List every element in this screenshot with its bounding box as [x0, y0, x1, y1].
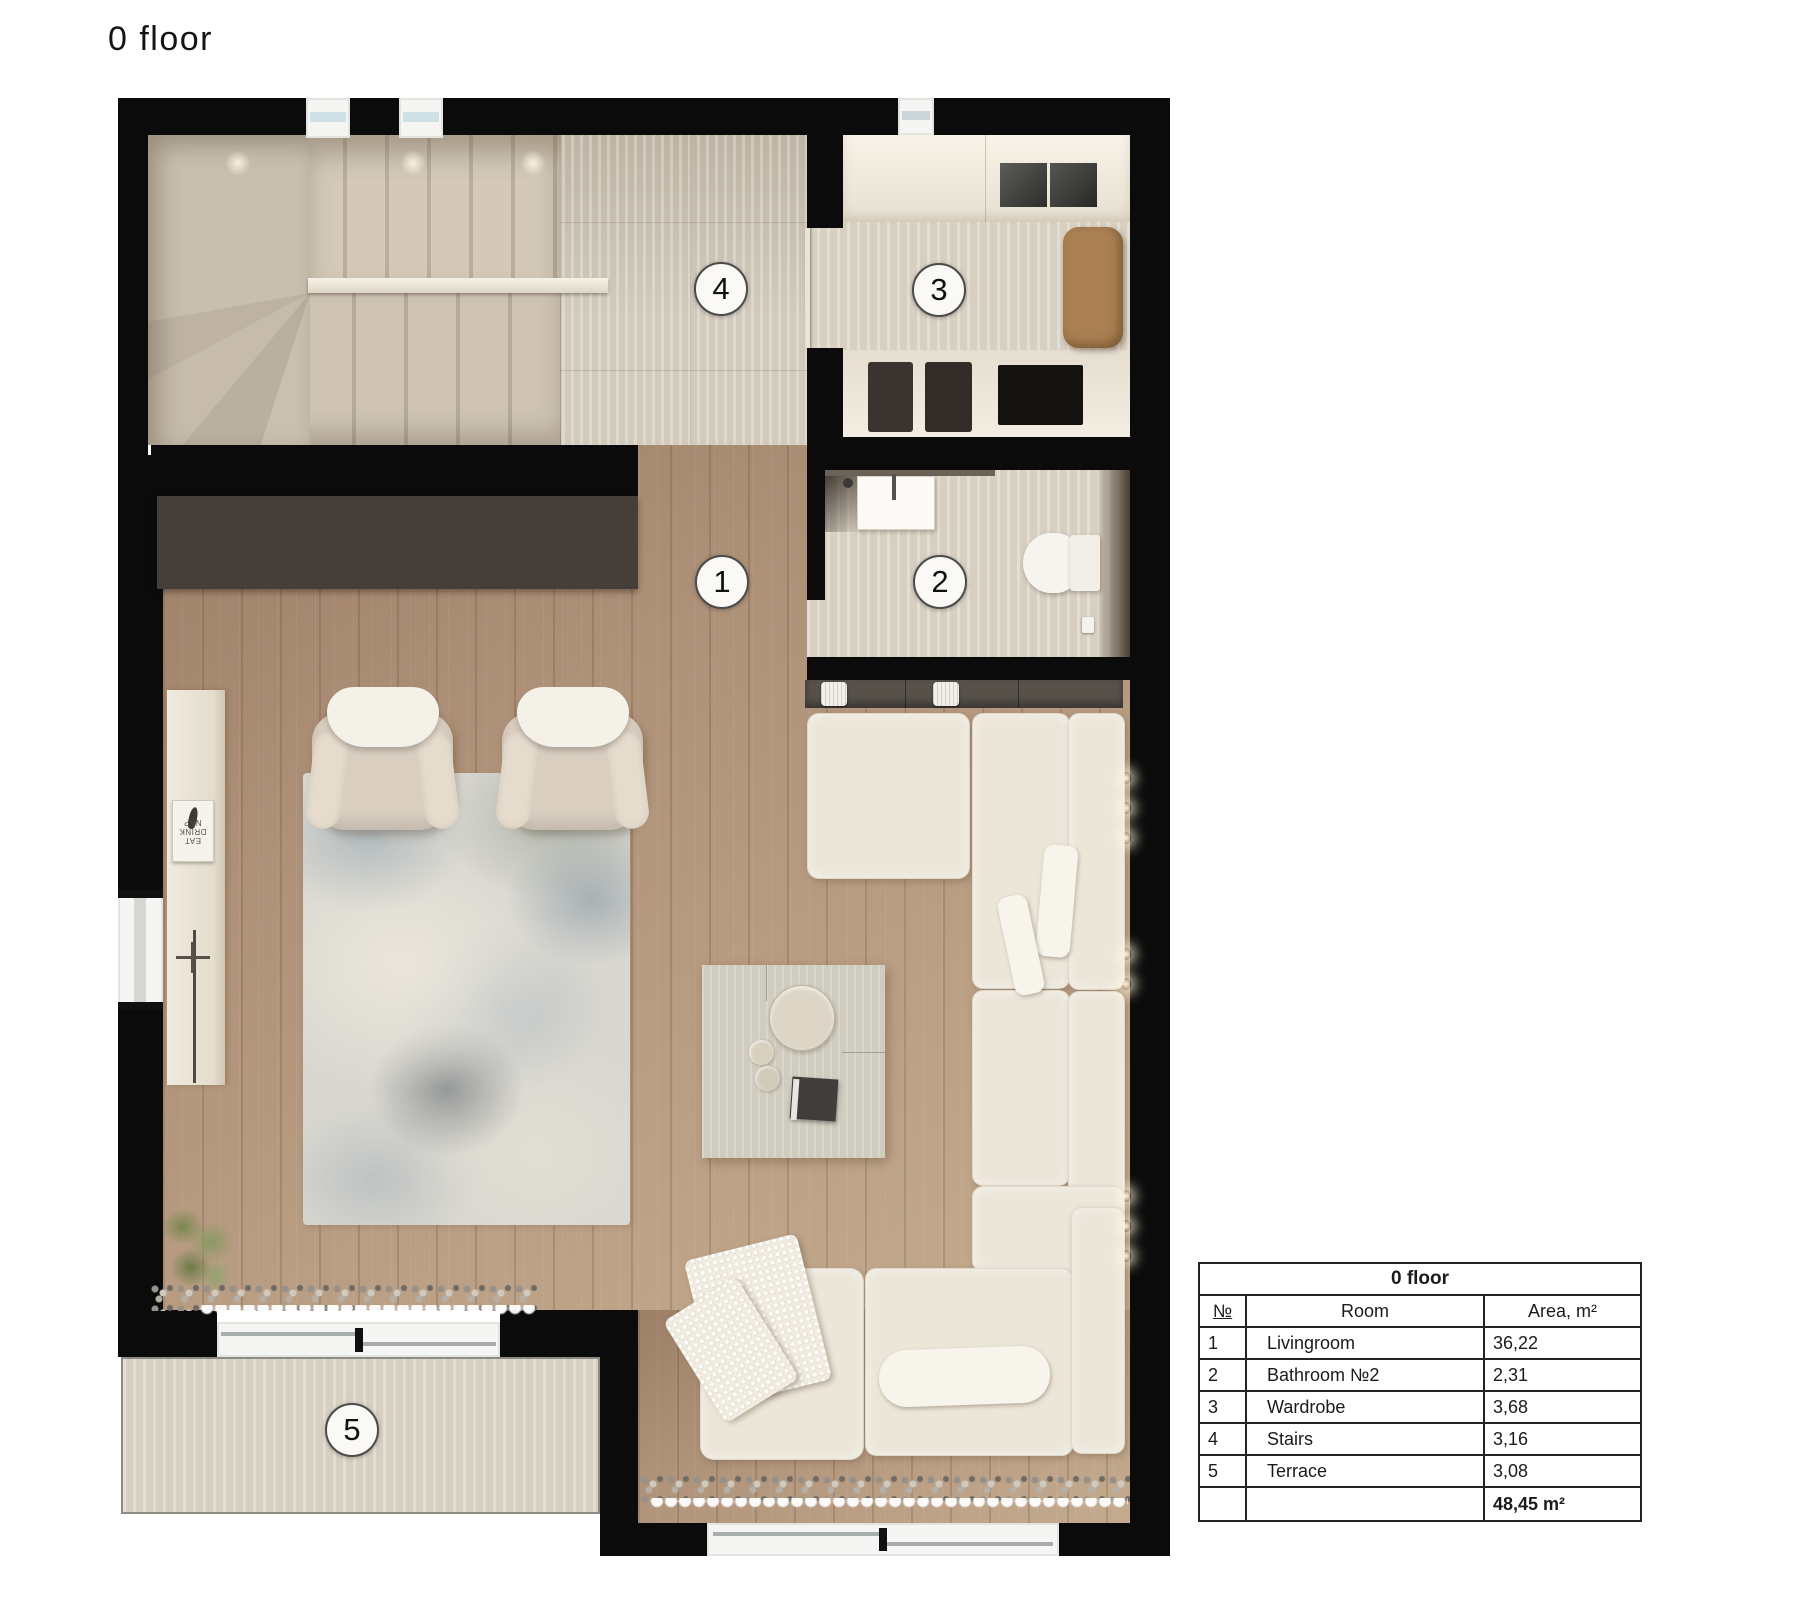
tile-joint	[560, 370, 843, 371]
window-left	[118, 890, 163, 1010]
wall-washer-light	[1121, 772, 1131, 784]
room-number: 2	[931, 564, 948, 600]
wall-stairs-wardrobe	[807, 98, 843, 228]
wall-bottom-right-of-window	[1059, 1523, 1130, 1556]
wall-unit-brown	[157, 496, 638, 589]
window-top	[399, 98, 443, 138]
cell-num: 1	[1199, 1327, 1246, 1359]
legend-col-num: №	[1199, 1295, 1246, 1327]
ceiling-spot-light	[225, 150, 251, 176]
terrace-sliding-door	[217, 1322, 500, 1357]
wall-right	[1130, 98, 1170, 1556]
room-badge-stairs: 4	[694, 262, 748, 316]
cell-room: Terrace	[1246, 1455, 1484, 1487]
sofa-seat	[972, 990, 1070, 1186]
table-seam	[842, 1052, 885, 1053]
cell-area: 36,22	[1484, 1327, 1641, 1359]
kitchen-counter	[167, 690, 225, 1085]
legend-row: 3 Wardrobe 3,68	[1199, 1391, 1641, 1423]
bottom-sliding-window	[707, 1523, 1059, 1556]
wall-left-upper	[118, 98, 148, 455]
window-stop	[118, 1002, 163, 1010]
door-handle	[879, 1528, 887, 1551]
cell-num: 5	[1199, 1455, 1246, 1487]
wardrobe-drawer	[1050, 163, 1097, 207]
wardrobe-bench	[1063, 227, 1123, 348]
legend-row: 4 Stairs 3,16	[1199, 1423, 1641, 1455]
bathroom-right-cabinet	[1096, 470, 1130, 657]
room-badge-terrace: 5	[325, 1403, 379, 1457]
wall-wardrobe-bathroom	[807, 437, 1170, 470]
room-number: 3	[930, 272, 947, 308]
legend-col-area: Area, m²	[1484, 1295, 1641, 1327]
cell-empty	[1199, 1487, 1246, 1521]
window-stop	[118, 890, 163, 898]
window-glass	[902, 111, 930, 120]
legend-header-row: № Room Area, m²	[1199, 1295, 1641, 1327]
cell-room: Bathroom №2	[1246, 1359, 1484, 1391]
door-track	[887, 1542, 1053, 1546]
legend-row: 1 Livingroom 36,22	[1199, 1327, 1641, 1359]
room-badge-livingroom: 1	[695, 555, 749, 609]
wardrobe-drawer	[1000, 163, 1047, 207]
cell-total-area: 48,45 m²	[1484, 1487, 1641, 1521]
ottoman	[807, 713, 970, 879]
console-divider	[905, 680, 906, 708]
kitchen-faucet-icon	[191, 942, 194, 973]
wall-washer-light	[1121, 802, 1131, 814]
window-glass	[403, 112, 439, 122]
wall-washer-light	[1121, 832, 1131, 844]
door-track	[713, 1532, 879, 1536]
wall-top	[118, 98, 1170, 135]
wall-washer-light	[1121, 978, 1131, 990]
legend-row: 2 Bathroom №2 2,31	[1199, 1359, 1641, 1391]
kitchen-poster: EAT DRINK NAP	[172, 800, 214, 862]
legend-title-row: 0 floor	[1199, 1263, 1641, 1295]
rolled-towel	[933, 682, 959, 706]
room-number: 4	[712, 271, 729, 307]
window-glass	[310, 112, 346, 122]
poster-line: EAT	[179, 836, 206, 845]
closet-divider	[985, 135, 986, 222]
door-track	[221, 1332, 355, 1336]
cell-num: 4	[1199, 1423, 1246, 1455]
armchair-headrest	[517, 687, 629, 747]
stairs-winder-fan	[148, 135, 310, 445]
storage-box	[925, 362, 972, 432]
wall-washer-light	[1121, 1250, 1131, 1262]
cell-area: 3,68	[1484, 1391, 1641, 1423]
area-rug	[303, 773, 630, 1225]
kitchen-poster-text: EAT DRINK NAP	[179, 818, 206, 845]
ceiling-spot-light	[520, 150, 546, 176]
armchair	[502, 687, 643, 830]
window-top-small	[898, 98, 934, 135]
faucet-icon	[892, 474, 896, 500]
bowl	[749, 1040, 774, 1065]
legend-col-room: Room	[1246, 1295, 1484, 1327]
armchair	[312, 687, 453, 830]
console-divider	[1018, 680, 1019, 708]
storage-box	[868, 362, 913, 432]
wall-vertical-lower	[600, 1310, 638, 1556]
cell-room: Stairs	[1246, 1423, 1484, 1455]
curtain-sheer	[200, 1305, 535, 1320]
sofa-lumbar-pillow	[878, 1345, 1051, 1408]
cell-empty	[1246, 1487, 1484, 1521]
toilet-tank	[1070, 535, 1100, 591]
table-seam	[766, 965, 767, 1001]
legend-total-row: 48,45 m²	[1199, 1487, 1641, 1521]
cell-area: 3,08	[1484, 1455, 1641, 1487]
toilet-paper-roll	[1082, 617, 1094, 633]
sink	[857, 476, 935, 530]
window-glass	[134, 896, 146, 1004]
legend-table: 0 floor № Room Area, m² 1 Livingroom 36,…	[1198, 1262, 1642, 1522]
wall-bottom-left-of-window	[638, 1523, 707, 1556]
ceiling-spot-light	[400, 150, 426, 176]
stairs-handrail	[308, 278, 608, 293]
cell-num: 3	[1199, 1391, 1246, 1423]
curtain-sheer	[650, 1498, 1128, 1513]
wall-bathroom-bottom	[807, 657, 1170, 680]
sofa-back-cushion	[1071, 1207, 1125, 1454]
door-track	[362, 1342, 496, 1346]
floor-plan-page: 0 floor	[0, 0, 1800, 1600]
cell-area: 2,31	[1484, 1359, 1641, 1391]
door-handle	[355, 1328, 363, 1352]
poster-line: DRINK	[179, 827, 206, 836]
poster-line: NAP	[179, 818, 206, 827]
armchair-headrest	[327, 687, 439, 747]
cell-area: 3,16	[1484, 1423, 1641, 1455]
faucet-icon	[843, 478, 853, 488]
door-leaf	[805, 228, 810, 348]
media-console	[805, 680, 1123, 708]
round-tray	[769, 985, 835, 1051]
legend-row: 5 Terrace 3,08	[1199, 1455, 1641, 1487]
tile-joint	[690, 135, 691, 445]
wall-washer-light	[1121, 948, 1131, 960]
wall-below-stairs	[151, 445, 638, 496]
cell-room: Livingroom	[1246, 1327, 1484, 1359]
bowl	[755, 1066, 780, 1091]
wall-washer-light	[1121, 1190, 1131, 1202]
cell-num: 2	[1199, 1359, 1246, 1391]
room-number: 5	[343, 1412, 360, 1448]
wall-bathroom-left	[807, 470, 825, 600]
room-badge-bathroom: 2	[913, 555, 967, 609]
window-top	[306, 98, 350, 138]
wall-washer-light	[1121, 1220, 1131, 1232]
legend-title: 0 floor	[1199, 1263, 1641, 1295]
rolled-towel	[821, 682, 847, 706]
room-number: 1	[713, 564, 730, 600]
storage-box-large	[998, 365, 1083, 425]
page-title: 0 floor	[108, 20, 213, 59]
room-badge-wardrobe: 3	[912, 263, 966, 317]
cell-room: Wardrobe	[1246, 1391, 1484, 1423]
tile-joint	[560, 222, 843, 223]
